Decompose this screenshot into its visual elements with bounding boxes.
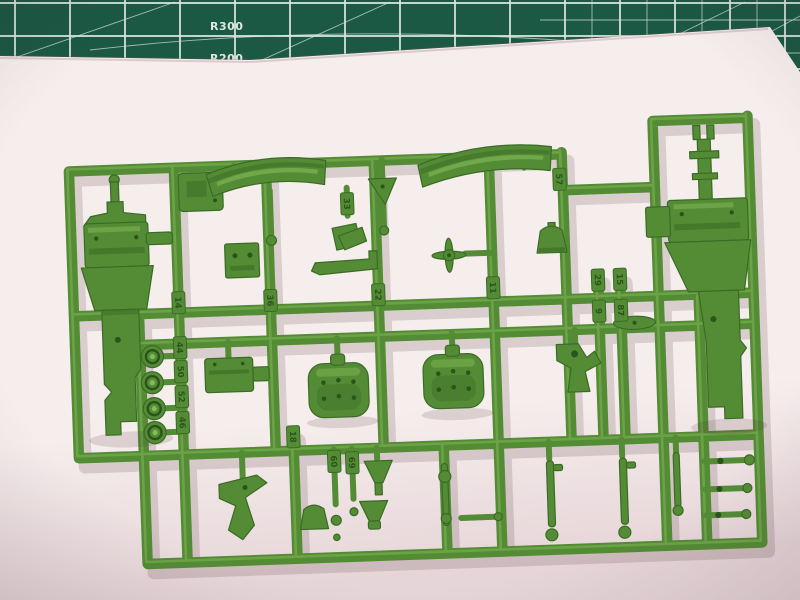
sprue-photo: R300 R200 [0, 0, 800, 600]
vignette-overlay [0, 0, 800, 600]
